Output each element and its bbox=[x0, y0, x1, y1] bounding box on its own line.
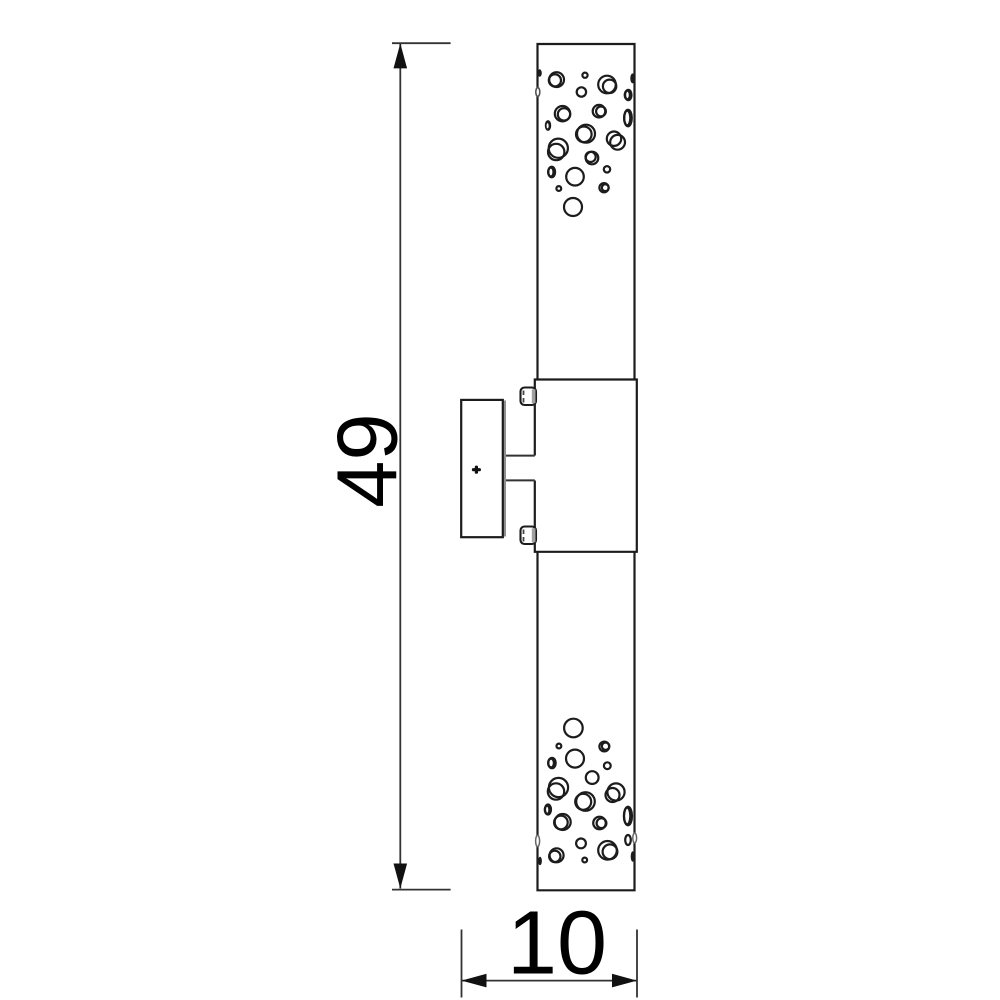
svg-text:49: 49 bbox=[321, 413, 416, 508]
svg-text:10: 10 bbox=[507, 894, 607, 994]
